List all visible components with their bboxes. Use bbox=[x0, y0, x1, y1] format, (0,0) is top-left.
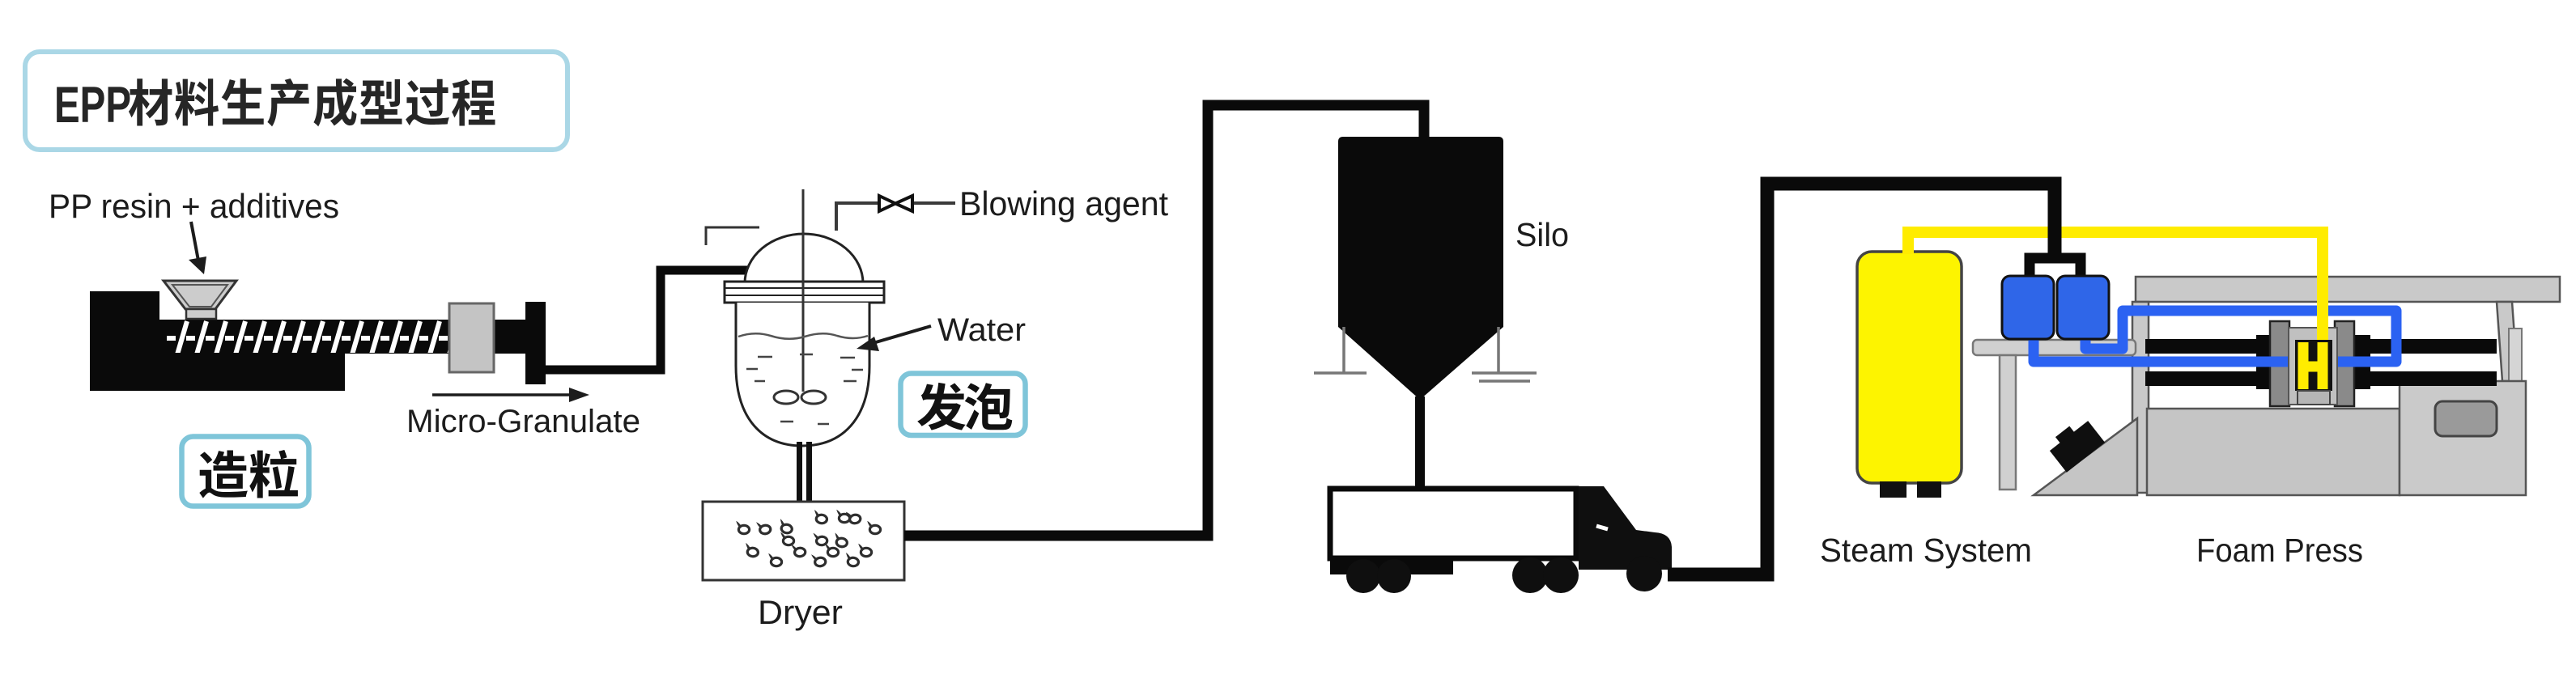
svg-text:Water: Water bbox=[937, 312, 1026, 348]
svg-text:EPP: EPP bbox=[54, 77, 131, 134]
svg-text:Silo: Silo bbox=[1515, 216, 1569, 253]
svg-text:PP resin + additives: PP resin + additives bbox=[49, 187, 339, 225]
svg-text:Micro-Granulate: Micro-Granulate bbox=[406, 404, 640, 439]
svg-text:Dryer: Dryer bbox=[758, 593, 843, 631]
svg-text:Blowing agent: Blowing agent bbox=[959, 184, 1168, 223]
svg-text:Foam Press: Foam Press bbox=[2196, 532, 2363, 569]
svg-text:Steam System: Steam System bbox=[1820, 532, 2032, 569]
